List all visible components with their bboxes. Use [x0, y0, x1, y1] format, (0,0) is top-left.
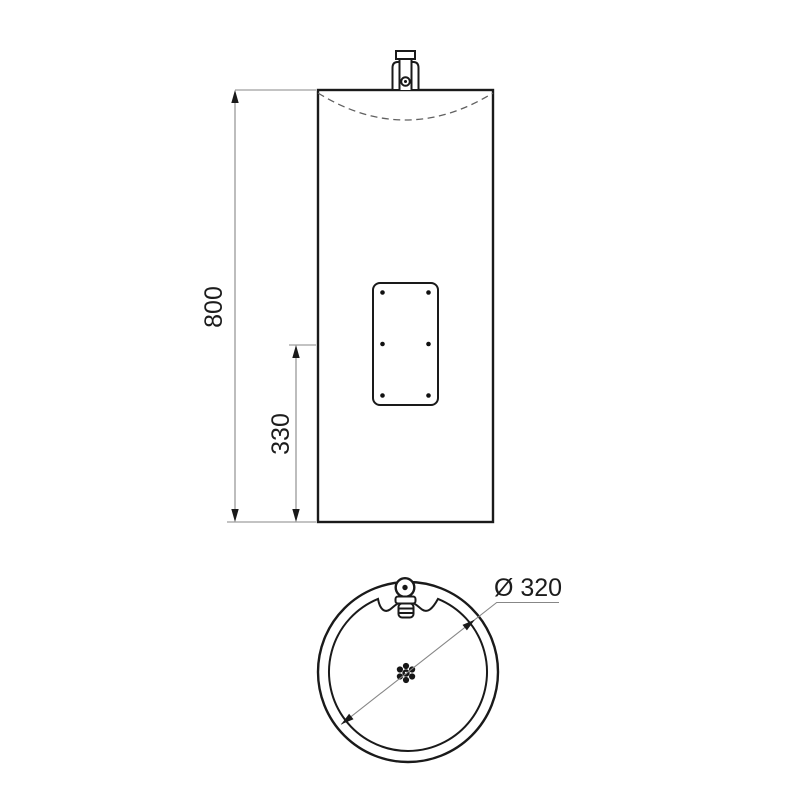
dimension-label-330: 330: [267, 413, 295, 455]
button-screw-dot: [404, 80, 407, 83]
dimension-lower-section: 330: [267, 345, 316, 522]
dimension-label-800: 800: [200, 286, 228, 328]
arrowhead-up-icon: [292, 345, 299, 358]
push-button-front: [393, 51, 419, 90]
drain-petal: [397, 666, 403, 672]
dimension-total-height: 800: [200, 90, 316, 522]
screw-hole: [426, 342, 431, 347]
button-right-lobe: [412, 62, 419, 90]
technical-drawing-canvas: 800 330: [0, 0, 800, 800]
button-top-band: [396, 597, 416, 604]
button-cap: [396, 51, 415, 59]
top-view: [318, 578, 498, 762]
front-view: [318, 51, 493, 522]
arrowhead-down-icon: [292, 509, 299, 522]
drain-petal: [403, 677, 409, 683]
screw-hole: [426, 393, 431, 398]
screw-hole: [380, 393, 385, 398]
drain-petal: [409, 673, 415, 679]
drain-petal: [403, 663, 409, 669]
arrowhead-down-icon: [231, 509, 238, 522]
button-top-body: [399, 604, 414, 618]
access-panel: [373, 283, 438, 405]
dimension-label-diameter: Ø 320: [494, 574, 562, 602]
screw-hole: [380, 290, 385, 295]
push-button-top: [396, 578, 416, 617]
screw-hole: [426, 290, 431, 295]
screw-hole: [380, 342, 385, 347]
arrowhead-up-icon: [231, 90, 238, 103]
button-top-center-dot: [402, 585, 407, 590]
button-left-lobe: [393, 62, 400, 90]
